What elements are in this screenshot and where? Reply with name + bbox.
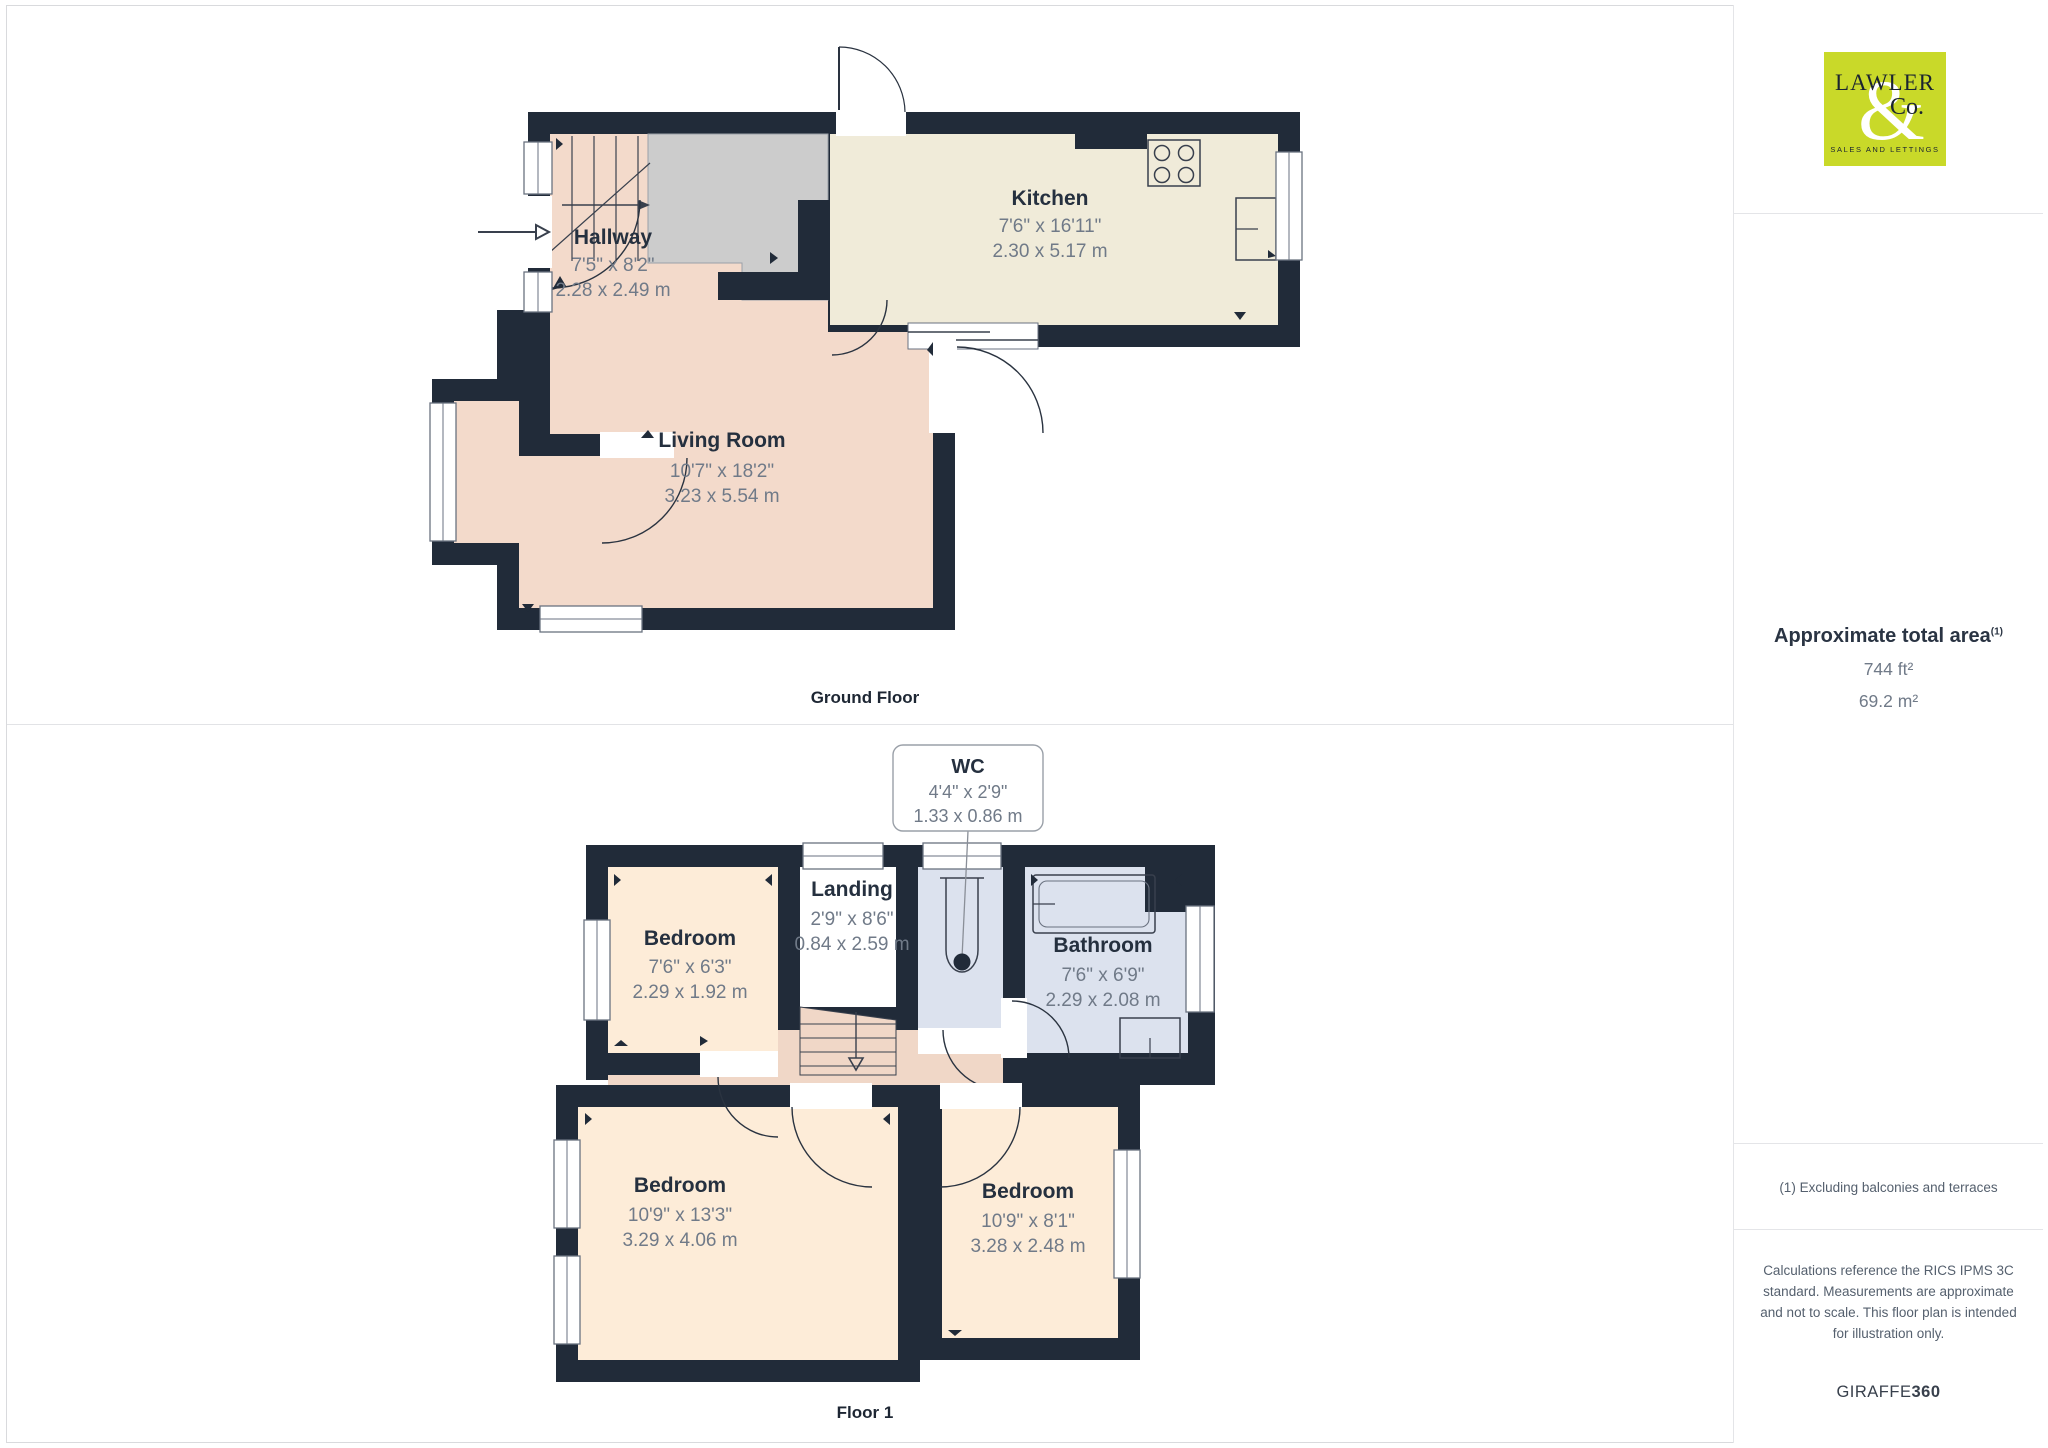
landing-metric: 0.84 x 2.59 m	[794, 934, 909, 955]
kitchen-window	[1276, 152, 1302, 260]
sidebar-divider-1	[1734, 213, 2043, 214]
bay-window-floor	[454, 401, 519, 543]
bedroom2-window-2	[554, 1256, 580, 1344]
living-room-imperial: 10'7" x 18'2"	[670, 461, 774, 482]
wc-imperial: 4'4" x 2'9"	[929, 782, 1008, 802]
landing-label: Landing	[811, 878, 893, 901]
bay-window	[430, 403, 456, 541]
ground-floor-plan: Hallway 7'5" x 8'2" 2.28 x 2.49 m Kitche…	[430, 47, 1302, 707]
bedroom1-window	[584, 920, 610, 1020]
bedroom3-label: Bedroom	[982, 1180, 1074, 1203]
hallway-window	[524, 142, 552, 194]
hob-icon	[1148, 140, 1200, 186]
hallway-imperial: 7'5" x 8'2"	[571, 255, 654, 276]
living-right-door-gap	[929, 347, 957, 433]
total-area-title: Approximate total area(1)	[1734, 625, 2043, 648]
landing-window	[803, 843, 883, 869]
bedroom3-imperial: 10'9" x 8'1"	[981, 1211, 1075, 1232]
hallway-metric: 2.28 x 2.49 m	[555, 280, 670, 301]
logo-word2: Co.	[1890, 94, 1924, 121]
ground-floor-caption: Ground Floor	[811, 688, 920, 707]
bedroom2-door-gap	[790, 1083, 872, 1109]
logo-word1: LAWLER	[1824, 70, 1946, 96]
floor-1-plan: WC 4'4" x 2'9" 1.33 x 0.86 m Bedroom 7'6…	[554, 745, 1215, 1422]
wc-metric: 1.33 x 0.86 m	[913, 806, 1022, 826]
bedroom1-metric: 2.29 x 1.92 m	[632, 982, 747, 1003]
brand-name: GIRAFFE	[1836, 1383, 1911, 1401]
floor-section-divider	[7, 724, 1733, 725]
bathroom-door-gap	[1001, 998, 1027, 1058]
hallway-window-2	[524, 272, 552, 312]
bathroom-window	[1186, 906, 1214, 1012]
bedroom3-door-gap	[940, 1083, 1022, 1109]
bedroom1-imperial: 7'6" x 6'3"	[648, 957, 731, 978]
bathroom-imperial: 7'6" x 6'9"	[1061, 965, 1144, 986]
bathroom-bottom-wall	[1003, 1053, 1215, 1085]
kitchen-sliding-door	[908, 323, 1038, 349]
floor-1-caption: Floor 1	[837, 1403, 894, 1422]
living-right-door-arc	[957, 347, 1043, 433]
bedroom2-metric: 3.29 x 4.06 m	[622, 1230, 737, 1251]
logo-tagline: SALES AND LETTINGS	[1824, 145, 1946, 154]
area-footnote: (1) Excluding balconies and terraces	[1744, 1180, 2033, 1195]
kitchen-imperial: 7'6" x 16'11"	[999, 216, 1102, 237]
bedroom3-window	[1114, 1150, 1140, 1278]
bedroom2-label: Bedroom	[634, 1174, 726, 1197]
living-room-label: Living Room	[658, 429, 785, 452]
wc-room	[918, 867, 1003, 1030]
bathroom-label: Bathroom	[1053, 934, 1152, 957]
info-sidebar: & LAWLER Co. SALES AND LETTINGS Approxim…	[1733, 5, 2043, 1443]
back-door-gap	[836, 110, 906, 136]
kitchen-label: Kitchen	[1011, 187, 1088, 210]
bedroom3-metric: 3.28 x 2.48 m	[970, 1236, 1085, 1257]
wc-callout-dot	[954, 954, 971, 971]
wc-window	[923, 843, 1001, 869]
disclaimer-text: Calculations reference the RICS IPMS 3C …	[1752, 1261, 2025, 1345]
total-area-block: Approximate total area(1) 744 ft² 69.2 m…	[1734, 625, 2043, 712]
bathroom-metric: 2.29 x 2.08 m	[1045, 990, 1160, 1011]
sidebar-divider-3	[1734, 1229, 2043, 1230]
hallway-label: Hallway	[574, 226, 653, 249]
agency-logo: & LAWLER Co. SALES AND LETTINGS	[1824, 52, 1946, 166]
landing-imperial: 2'9" x 8'6"	[810, 909, 893, 930]
total-area-superscript: (1)	[1991, 626, 2003, 637]
bedroom1-label: Bedroom	[644, 927, 736, 950]
bedroom1-door-gap	[700, 1051, 778, 1077]
kitchen-wall-notch	[1075, 134, 1147, 149]
bedroom2-window-1	[554, 1140, 580, 1228]
giraffe360-brand: GIRAFFE360	[1734, 1383, 2043, 1402]
living-bottom-window	[540, 606, 642, 632]
total-area-metric: 69.2 m²	[1734, 691, 2043, 712]
total-area-title-text: Approximate total area	[1774, 625, 1991, 647]
back-door-arc	[839, 47, 905, 112]
kitchen-metric: 2.30 x 5.17 m	[992, 241, 1107, 262]
wc-label: WC	[951, 756, 984, 778]
sidebar-divider-2	[1734, 1143, 2043, 1144]
wc-door-gap	[918, 1028, 1003, 1054]
total-area-imperial: 744 ft²	[1734, 659, 2043, 680]
brand-suffix: 360	[1911, 1383, 1940, 1401]
living-room-metric: 3.23 x 5.54 m	[664, 486, 779, 507]
bedroom2-imperial: 10'9" x 13'3"	[628, 1205, 732, 1226]
